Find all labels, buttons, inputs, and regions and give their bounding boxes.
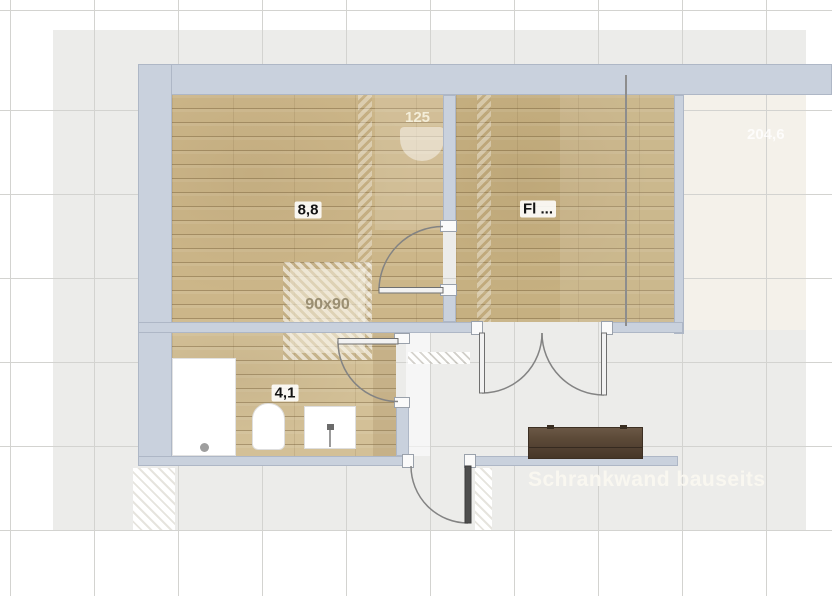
divider-door-leaf[interactable] <box>379 288 443 294</box>
sideboard[interactable] <box>528 427 643 459</box>
sideboard-knob <box>620 425 627 429</box>
double-door-left-leaf[interactable] <box>480 333 485 393</box>
exit-door-arc <box>411 466 468 523</box>
bathroom-door-leaf[interactable] <box>338 339 398 345</box>
double-door-right-leaf[interactable] <box>602 333 607 395</box>
dimension-label: 204,6 <box>747 126 785 143</box>
room-area-label: 8,8 <box>295 202 322 219</box>
floor-plan-canvas: 125 90x90 <box>0 0 832 596</box>
double-door-right-arc <box>542 333 604 395</box>
door-layer <box>0 0 832 596</box>
sideboard-knob <box>547 425 554 429</box>
double-door-left-arc <box>482 333 542 393</box>
divider-door-arc <box>379 227 443 291</box>
room-area-label: Fl ... <box>520 201 556 218</box>
bathroom-door-arc <box>338 342 398 402</box>
exit-door-leaf[interactable] <box>465 466 471 523</box>
room-area-label: 4,1 <box>272 385 299 402</box>
cabinet-annotation: Schrankwand bauseits <box>528 468 766 492</box>
